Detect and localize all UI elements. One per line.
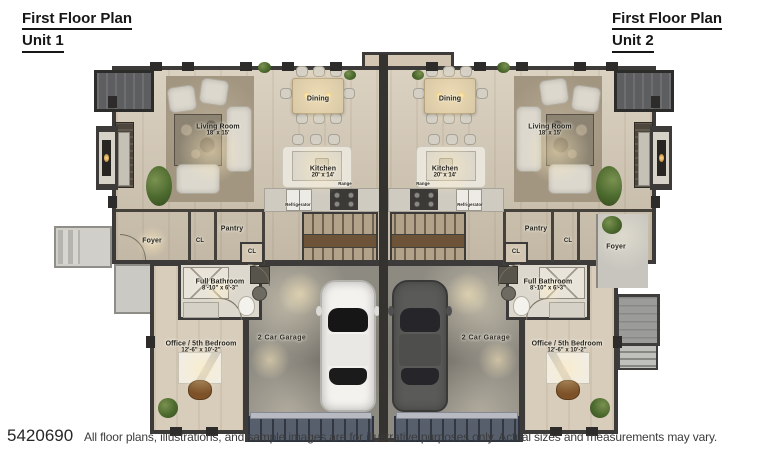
living-room-area-rug <box>174 114 222 166</box>
bar-stool <box>328 134 340 145</box>
room-label-unit2-closet-b: CL <box>512 249 520 255</box>
closet-pantry-wall <box>214 209 217 265</box>
closet-pantry-wall <box>551 209 554 265</box>
potted-tree <box>596 166 622 206</box>
potted-plant <box>590 398 610 418</box>
fireplace-bump <box>650 126 672 190</box>
label-unit2-range: Range <box>412 181 434 188</box>
bar-stool <box>428 134 440 145</box>
potted-plant <box>158 398 178 418</box>
unit2-plan-title: First Floor Plan <box>612 10 722 30</box>
staircase <box>390 212 466 262</box>
water-heater <box>252 286 267 301</box>
greenery <box>497 62 510 73</box>
office-chair <box>188 380 212 400</box>
unit1-floorplan <box>0 0 384 455</box>
room-label-unit2-foyer: Foyer <box>606 244 626 251</box>
car <box>392 280 448 412</box>
loveseat <box>548 164 592 194</box>
disclaimer-text: All floor plans, illustrations, and samp… <box>84 430 717 444</box>
armchair <box>538 77 569 107</box>
label-unit1-range: Range <box>334 181 356 188</box>
media-console <box>118 132 130 186</box>
bathroom-vanity <box>549 302 585 318</box>
party-wall <box>379 54 388 442</box>
office-chair <box>556 380 580 400</box>
room-label-unit2-dining: Dining <box>439 96 461 103</box>
bathroom-vanity <box>183 302 219 318</box>
media-console <box>638 132 650 186</box>
unit1-garage-door-rail <box>250 412 372 419</box>
unit1-header: First Floor Plan Unit 1 <box>22 10 132 55</box>
unit2-label: Unit 2 <box>612 32 654 52</box>
toilet <box>238 296 255 316</box>
unit2-header: First Floor Plan Unit 2 <box>612 10 722 55</box>
room-label-unit2-living-room: Living Room18' x 15' <box>528 124 572 137</box>
unit2-garage-door-rail <box>396 412 518 419</box>
room-label-unit2-closet-a: CL <box>564 238 572 244</box>
room-label-unit2-pantry: Pantry <box>525 226 547 233</box>
room-label-unit1-foyer: Foyer <box>142 238 162 245</box>
range-appliance <box>410 189 438 210</box>
room-label-unit2-garage: 2 Car Garage <box>462 335 510 342</box>
potted-tree <box>146 166 172 206</box>
water-heater <box>501 286 516 301</box>
listing-id: 5420690 <box>7 426 73 446</box>
foyer-closet-wall <box>188 209 191 265</box>
staircase <box>302 212 378 262</box>
loveseat <box>176 164 220 194</box>
room-label-unit2-full-bathroom: Full Bathroom8'-10" x 6'-3" <box>524 279 573 292</box>
bar-stool <box>464 134 476 145</box>
living-room-area-rug <box>546 114 594 166</box>
range-appliance <box>330 189 358 210</box>
armchair <box>166 84 197 114</box>
room-label-unit2-kitchen: Kitchen20' x 14' <box>432 166 458 179</box>
room-label-unit1-office-bedroom: Office / 5th Bedroom12'-6" x 10'-2" <box>166 341 237 354</box>
unit2-floorplan <box>384 0 768 455</box>
room-label-unit1-dining: Dining <box>307 96 329 103</box>
room-label-unit2-office-bedroom: Office / 5th Bedroom12'-6" x 10'-2" <box>532 341 603 354</box>
armchair <box>570 84 601 114</box>
armchair <box>198 77 229 107</box>
greenery <box>344 70 356 80</box>
sofa <box>226 106 252 172</box>
bar-stool <box>446 134 458 145</box>
bar-stool <box>310 134 322 145</box>
room-label-unit1-kitchen: Kitchen20' x 14' <box>310 166 336 179</box>
fireplace-bump <box>96 126 118 190</box>
toilet <box>513 296 530 316</box>
front-stoop-deck <box>614 70 674 112</box>
room-label-unit1-living-room: Living Room18' x 15' <box>196 124 240 137</box>
porch-plant <box>602 216 622 234</box>
room-label-unit1-garage: 2 Car Garage <box>258 335 306 342</box>
label-unit1-refrigerator: Refrigerator <box>277 202 318 209</box>
greenery <box>412 70 424 80</box>
foyer-closet-wall <box>577 209 580 265</box>
front-stoop-deck <box>94 70 154 112</box>
room-label-unit1-pantry: Pantry <box>221 226 243 233</box>
car <box>320 280 376 412</box>
unit1-plan-title: First Floor Plan <box>22 10 132 30</box>
room-label-unit1-closet-a: CL <box>196 238 204 244</box>
floor-plan-page: First Floor Plan Unit 1 First Floor Plan… <box>0 0 768 455</box>
room-label-unit1-closet-b: CL <box>248 249 256 255</box>
unit1-label: Unit 1 <box>22 32 64 52</box>
label-unit2-refrigerator: Refrigerator <box>449 202 490 209</box>
sofa <box>516 106 542 172</box>
bar-stool <box>292 134 304 145</box>
greenery <box>258 62 271 73</box>
room-label-unit1-full-bathroom: Full Bathroom8'-10" x 6'-3" <box>196 279 245 292</box>
